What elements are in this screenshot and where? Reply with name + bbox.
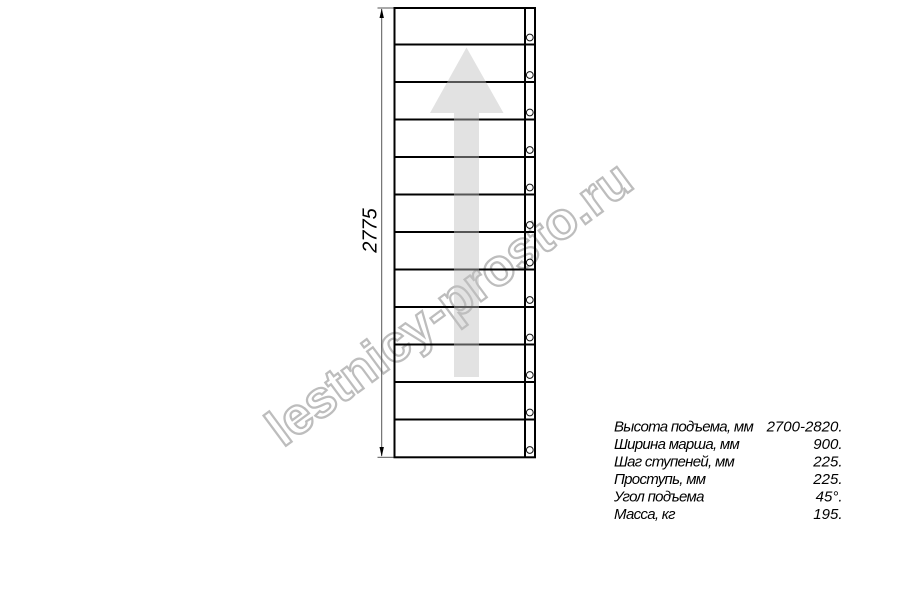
svg-text:45°.: 45°. <box>816 489 843 506</box>
svg-text:Шаг ступеней, мм: Шаг ступеней, мм <box>614 454 735 471</box>
svg-text:900.: 900. <box>813 436 842 453</box>
svg-text:lestnicy-prosto.ru: lestnicy-prosto.ru <box>256 150 644 458</box>
svg-text:225.: 225. <box>812 471 842 488</box>
svg-text:Проступь, мм: Проступь, мм <box>614 471 706 488</box>
svg-text:2700-2820.: 2700-2820. <box>766 419 843 436</box>
svg-text:195.: 195. <box>813 506 842 523</box>
svg-text:Высота подъема, мм: Высота подъема, мм <box>614 419 753 436</box>
svg-text:Масса, кг: Масса, кг <box>614 506 676 523</box>
svg-text:Угол подъема: Угол подъема <box>613 489 704 506</box>
svg-text:225.: 225. <box>812 454 842 471</box>
svg-text:2775: 2775 <box>359 207 381 253</box>
svg-text:Ширина марша, мм: Ширина марша, мм <box>614 436 739 453</box>
